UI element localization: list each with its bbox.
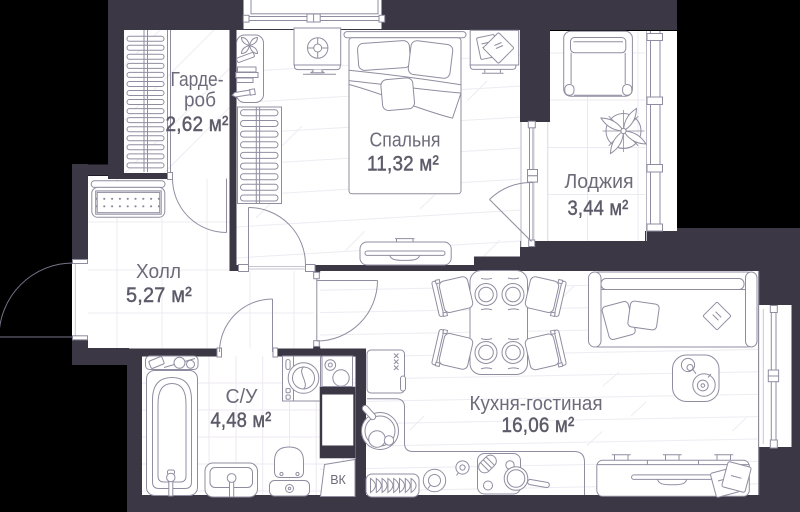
- svg-text:ВК: ВК: [330, 473, 346, 487]
- svg-text:Кухня-гостиная: Кухня-гостиная: [470, 393, 603, 415]
- svg-text:Холл: Холл: [136, 261, 181, 283]
- svg-text:3,44 м²: 3,44 м²: [568, 196, 629, 220]
- svg-text:роб: роб: [184, 90, 216, 112]
- svg-text:16,06 м²: 16,06 м²: [502, 413, 575, 437]
- svg-text:С/У: С/У: [226, 386, 258, 408]
- svg-text:Гарде-: Гарде-: [171, 69, 224, 91]
- svg-text:5,27 м²: 5,27 м²: [126, 283, 192, 307]
- svg-text:4,48 м²: 4,48 м²: [211, 408, 272, 432]
- svg-text:11,32 м²: 11,32 м²: [367, 152, 439, 176]
- svg-text:2,62 м²: 2,62 м²: [166, 112, 229, 136]
- svg-text:Лоджия: Лоджия: [565, 171, 634, 193]
- svg-text:Спальня: Спальня: [370, 130, 441, 152]
